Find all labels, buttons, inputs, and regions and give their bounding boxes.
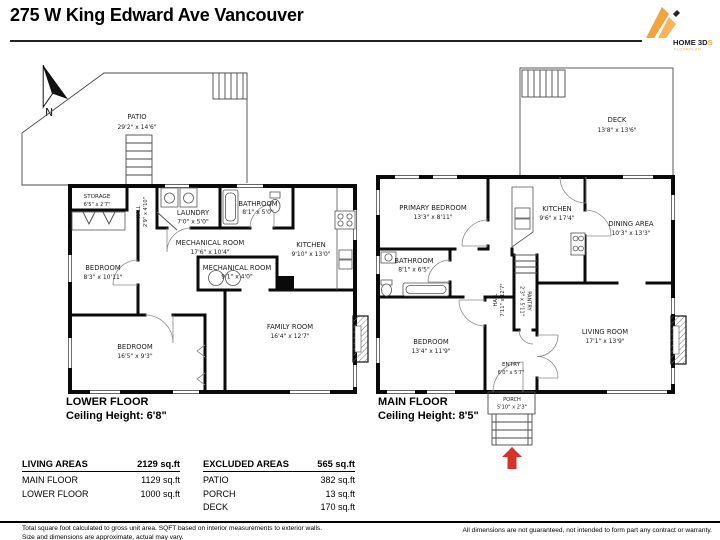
room-dims-laundry: 7'0" x 5'0" xyxy=(177,219,209,226)
footer-divider xyxy=(0,521,720,523)
logo-wordmark: HOME 3DS xyxy=(673,38,713,47)
room-dims-hall: 2'9" x 4'10" xyxy=(143,197,149,227)
room-label-main-bedroom: BEDROOM xyxy=(413,338,449,346)
logo-subtitle: FLOORPLAN xyxy=(674,48,701,52)
living-areas-header-row: LIVING AREAS 2129 sq.ft xyxy=(22,459,180,472)
page-title: 275 W King Edward Ave Vancouver xyxy=(10,5,304,26)
north-label: N xyxy=(45,106,53,119)
living-areas-header: LIVING AREAS xyxy=(22,459,88,469)
entry-arrow-icon xyxy=(502,447,522,469)
room-label-lower-bathroom: BATHROOM xyxy=(238,200,277,208)
room-dims-family: 16'4" x 12'7" xyxy=(270,333,309,340)
room-dims-porch: 5'10" x 2'3" xyxy=(497,405,527,411)
room-dims-mechanical1: 17'6" x 10'4" xyxy=(190,249,229,256)
row-value: 1000 sq.ft xyxy=(140,488,180,502)
room-dims-primary-bedroom: 13'3" x 8'11" xyxy=(413,214,452,221)
room-label-storage: STORAGE xyxy=(84,194,111,200)
room-dims-main-bedroom: 13'4" x 11'9" xyxy=(411,348,450,355)
table-row: LOWER FLOOR 1000 sq.ft xyxy=(22,488,180,502)
footer-disclaimer-right: All dimensions are not guaranteed, not i… xyxy=(463,527,712,534)
living-areas-table: LIVING AREAS 2129 sq.ft MAIN FLOOR 1129 … xyxy=(22,459,180,501)
room-dims-dining: 10'3" x 13'3" xyxy=(611,230,650,237)
laundry-machines xyxy=(161,188,197,207)
lower-floor-ceiling: Ceiling Height: 6'8" xyxy=(66,410,167,424)
room-label-mechanical1: MECHANICAL ROOM xyxy=(176,239,245,247)
room-dims-living: 17'1" x 13'9" xyxy=(585,338,624,345)
room-dims-main-bathroom: 8'1" x 6'5" xyxy=(398,267,430,274)
room-dims-main-kitchen: 9'6" x 17'4" xyxy=(539,215,575,222)
excluded-areas-header: EXCLUDED AREAS xyxy=(203,459,289,469)
room-label-main-bathroom: BATHROOM xyxy=(394,257,433,265)
room-dims-bedroom1: 8'3" x 10'11" xyxy=(83,274,122,281)
room-dims-pantry: 2'3" x 5'11" xyxy=(519,286,525,316)
lower-floor-plan: N PATIO 29'2" x 14'6" xyxy=(15,60,371,410)
footer-line2: Size and dimensions are approximate, act… xyxy=(22,534,322,540)
title-divider xyxy=(10,40,642,42)
table-row: PATIO 382 sq.ft xyxy=(203,474,355,488)
home3ds-logo: HOME 3DS FLOORPLAN xyxy=(640,4,715,52)
room-dims-bedroom2: 16'5" x 9'3" xyxy=(117,353,153,360)
main-floor-ceiling: Ceiling Height: 8'5" xyxy=(378,410,479,424)
room-label-primary-bedroom: PRIMARY BEDROOM xyxy=(399,204,467,212)
room-label-main-hall: HALL xyxy=(493,293,499,306)
excluded-areas-total: 565 sq.ft xyxy=(317,459,355,469)
room-dims-entry: 6'0" x 5'7" xyxy=(498,370,525,376)
porch-steps xyxy=(492,414,532,445)
row-value: 13 sq.ft xyxy=(325,488,355,502)
patio-exterior-stairs xyxy=(213,73,247,99)
table-row: DECK 170 sq.ft xyxy=(203,501,355,515)
room-dims-lower-kitchen: 9'10" x 13'0" xyxy=(291,251,330,258)
room-label-bedroom1: BEDROOM xyxy=(85,264,121,272)
excluded-areas-table: EXCLUDED AREAS 565 sq.ft PATIO 382 sq.ft… xyxy=(203,459,355,515)
floorplan-page: 275 W King Edward Ave Vancouver HOME 3DS… xyxy=(0,0,720,540)
row-label: LOWER FLOOR xyxy=(22,488,89,502)
room-label-dining: DINING AREA xyxy=(608,220,654,228)
room-dims-patio: 29'2" x 14'6" xyxy=(117,124,156,131)
room-label-entry: ENTRY xyxy=(502,362,521,368)
table-row: PORCH 13 sq.ft xyxy=(203,488,355,502)
row-label: PORCH xyxy=(203,488,236,502)
room-label-lower-kitchen: KITCHEN xyxy=(296,241,325,249)
wall-block xyxy=(277,276,294,290)
room-dims-storage: 6'5" x 2'7" xyxy=(84,202,111,208)
footer-line1: Total square foot calculated to gross un… xyxy=(22,525,322,534)
row-label: DECK xyxy=(203,501,228,515)
footer-disclaimer-left: Total square foot calculated to gross un… xyxy=(22,525,322,540)
room-label-hall: HALL xyxy=(136,205,142,218)
lower-bathtub xyxy=(223,190,238,224)
living-room-fireplace xyxy=(671,316,686,364)
logo-pen-nib xyxy=(673,10,680,17)
living-areas-total: 2129 sq.ft xyxy=(137,459,180,469)
patio-stairs xyxy=(126,135,152,185)
room-label-patio: PATIO xyxy=(127,113,146,121)
row-label: MAIN FLOOR xyxy=(22,474,78,488)
row-label: PATIO xyxy=(203,474,229,488)
room-label-living: LIVING ROOM xyxy=(582,328,628,336)
room-label-pantry: PANTRY xyxy=(526,291,532,311)
room-dims-lower-bathroom: 8'1" x 5'0" xyxy=(242,209,274,216)
room-label-laundry: LAUNDRY xyxy=(177,209,210,217)
room-dims-main-hall: 7'11" x 12'7" xyxy=(500,283,506,316)
room-label-porch: PORCH xyxy=(503,397,521,403)
room-label-family: FAMILY ROOM xyxy=(267,323,313,331)
room-dims-mechanical2: 9'1" x 4'0" xyxy=(221,274,253,281)
room-label-pantry-group: PANTRY 2'3" x 5'11" xyxy=(519,286,532,316)
row-value: 382 sq.ft xyxy=(320,474,355,488)
main-stairs-down xyxy=(514,261,537,273)
family-room-fireplace xyxy=(353,316,368,362)
lower-floor-caption: LOWER FLOOR Ceiling Height: 6'8" xyxy=(66,396,167,423)
room-label-deck: DECK xyxy=(608,116,627,124)
room-dims-deck: 13'8" x 13'6" xyxy=(597,127,636,134)
lower-floor-title: LOWER FLOOR xyxy=(66,396,167,410)
room-label-main-kitchen: KITCHEN xyxy=(542,205,571,213)
table-row: MAIN FLOOR 1129 sq.ft xyxy=(22,474,180,488)
room-label-bedroom2: BEDROOM xyxy=(117,343,153,351)
row-value: 1129 sq.ft xyxy=(141,474,180,488)
porch-outline xyxy=(488,392,535,414)
room-label-mechanical2: MECHANICAL ROOM xyxy=(203,264,272,272)
deck-stairs xyxy=(522,70,565,97)
main-floor-title: MAIN FLOOR xyxy=(378,396,479,410)
row-value: 170 sq.ft xyxy=(320,501,355,515)
excluded-areas-header-row: EXCLUDED AREAS 565 sq.ft xyxy=(203,459,355,472)
north-arrow-icon xyxy=(31,61,68,107)
room-label-main-hall-group: HALL 7'11" x 12'7" xyxy=(493,283,506,316)
main-floor-caption: MAIN FLOOR Ceiling Height: 8'5" xyxy=(378,396,479,423)
bedroom1-closet xyxy=(72,212,125,230)
